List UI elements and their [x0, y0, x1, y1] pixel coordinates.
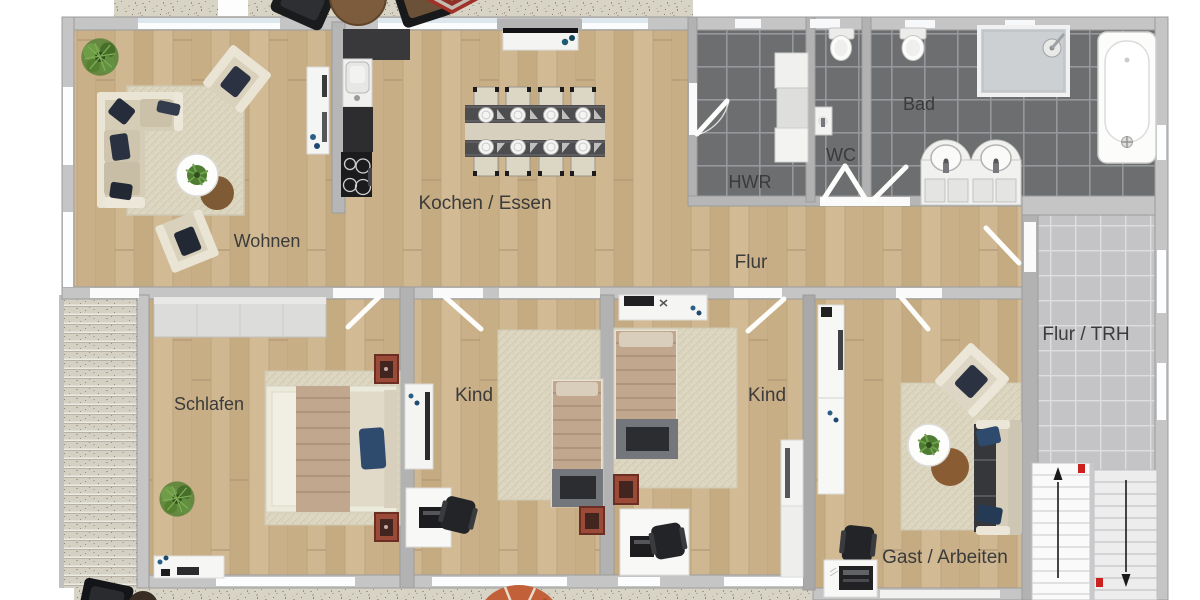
svg-text:Kind: Kind: [748, 385, 786, 406]
svg-text:Schlafen: Schlafen: [174, 394, 244, 414]
svg-text:WC: WC: [826, 145, 856, 165]
svg-text:Kochen / Essen: Kochen / Essen: [418, 193, 551, 214]
svg-text:Flur: Flur: [735, 252, 768, 273]
svg-text:Gast / Arbeiten: Gast / Arbeiten: [882, 547, 1008, 568]
svg-text:Kind: Kind: [455, 385, 493, 406]
svg-text:Wohnen: Wohnen: [234, 231, 301, 251]
svg-text:HWR: HWR: [729, 172, 772, 192]
svg-text:Bad: Bad: [903, 94, 935, 114]
svg-text:Flur / TRH: Flur / TRH: [1042, 324, 1129, 345]
